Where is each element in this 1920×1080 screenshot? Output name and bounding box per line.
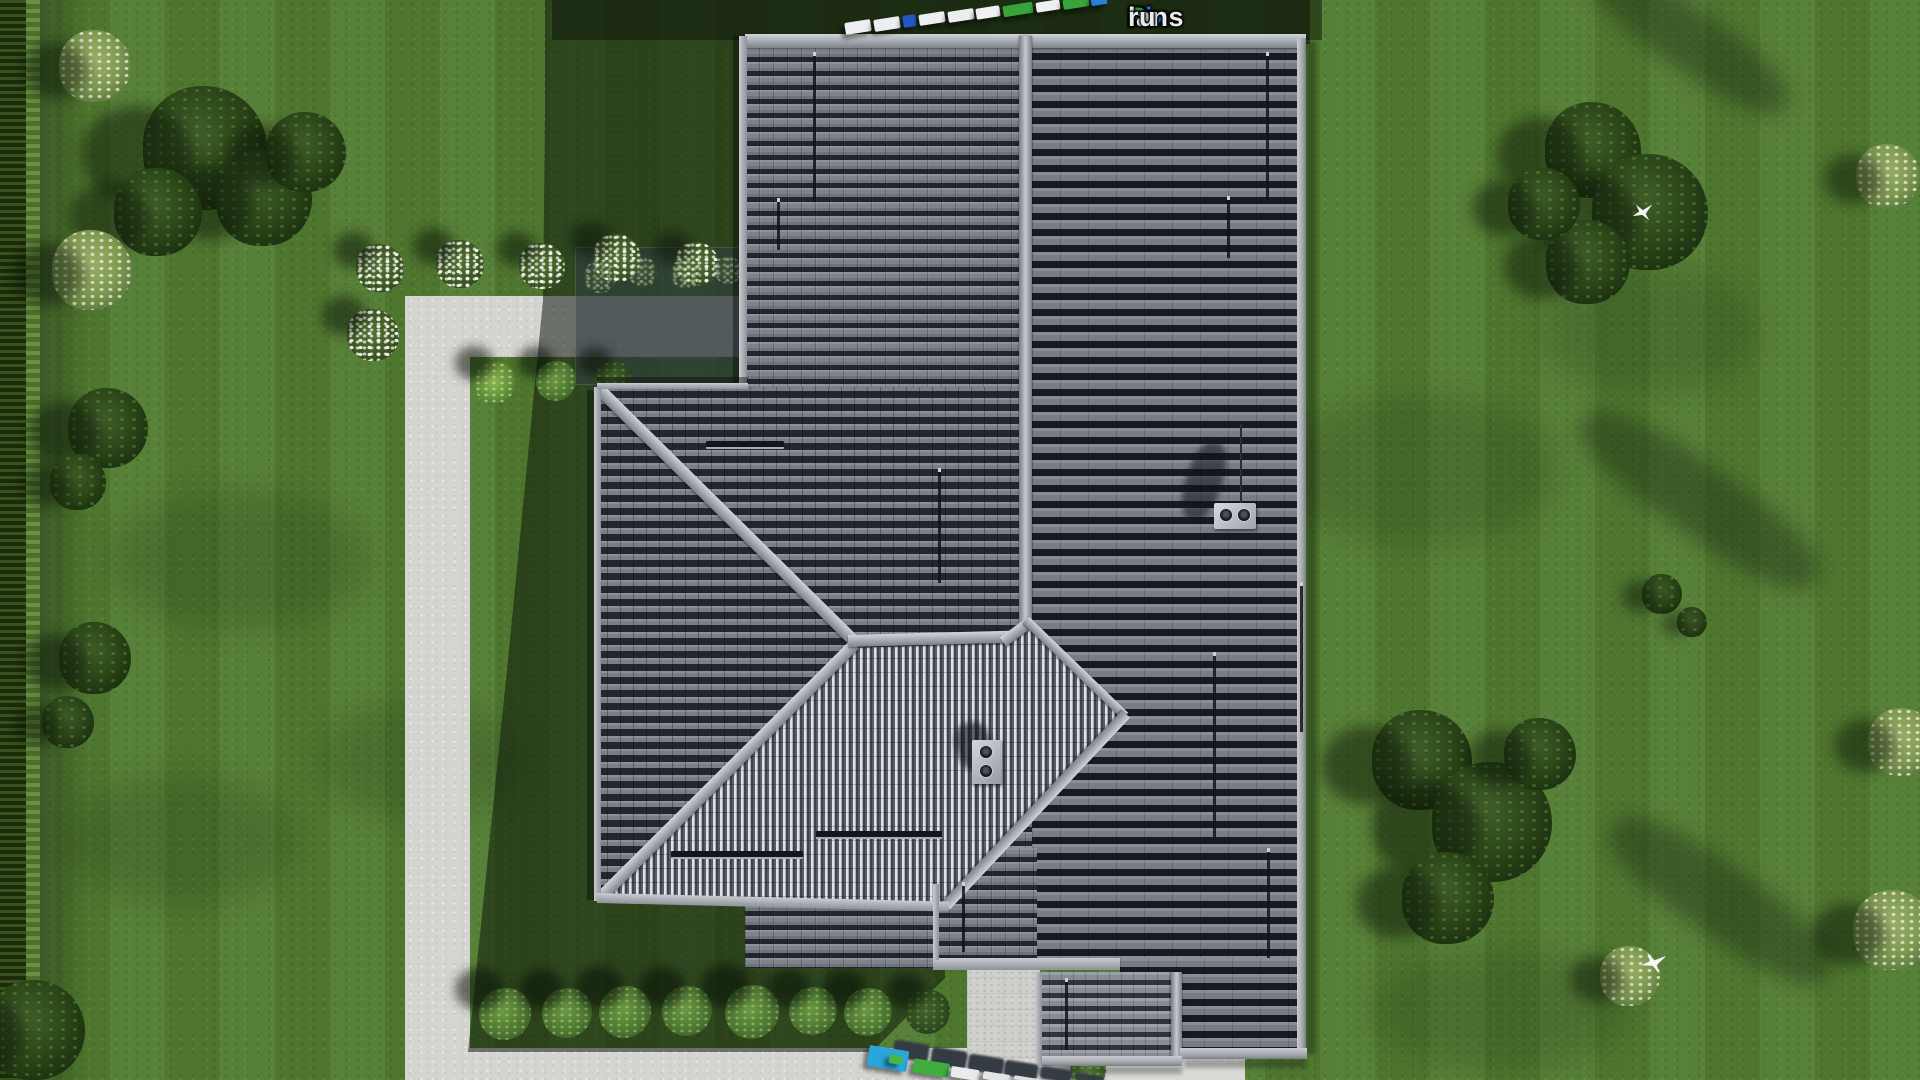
snow-guard: [813, 52, 816, 202]
roof-vent: [706, 441, 784, 449]
tree: [59, 30, 131, 102]
tree: [59, 622, 131, 694]
walkway-left-segment: [405, 296, 470, 1048]
roof-vent: [671, 851, 803, 859]
flower-bush: [584, 261, 616, 293]
flower-bush: [671, 259, 701, 289]
tree: [1853, 890, 1920, 970]
main-left-eave: [739, 36, 747, 387]
lawn-patch: [110, 490, 370, 630]
aerial-house-render: FixPlans.ru: [0, 0, 1920, 1080]
snow-guard: [1227, 196, 1230, 258]
tree: [1856, 144, 1920, 208]
snow-guard: [962, 882, 965, 952]
tree: [50, 454, 106, 510]
tree: [266, 112, 346, 192]
snow-guard: [938, 468, 941, 583]
step-left-eave: [933, 884, 939, 960]
tree: [42, 696, 94, 748]
tree: [1677, 607, 1707, 637]
wing-left-shadow-line: [587, 390, 594, 900]
flower-bush: [628, 257, 658, 287]
porch-roof: [1037, 972, 1182, 1063]
center-ridge-cap: [1019, 36, 1032, 624]
tree-shadow-streak: [1565, 391, 1835, 609]
step-bottom-eave: [933, 958, 1120, 970]
snow-guard: [1300, 582, 1303, 732]
green-bush: [474, 362, 516, 404]
snow-guard: [1065, 978, 1068, 1050]
tree: [1504, 718, 1576, 790]
wing-top-eave: [597, 383, 748, 389]
snow-guard: [777, 198, 780, 250]
green-bush: [906, 990, 950, 1034]
chimney-pipe: [1237, 508, 1251, 522]
main-right-eave: [1297, 38, 1306, 1058]
lawn-patch: [65, 775, 295, 905]
southeast-eave-shadow: [1184, 1059, 1306, 1068]
car: [902, 14, 917, 28]
wing-top-shadow-line: [597, 377, 748, 383]
right-eave-ground-shadow: [1306, 42, 1316, 1054]
tree: [114, 168, 202, 256]
flower-bush: [519, 243, 565, 289]
antenna-rod: [1240, 424, 1242, 506]
chimney: [1214, 503, 1256, 529]
main-roof-east-slope: [1032, 44, 1304, 968]
chimney: [972, 740, 1002, 784]
flower-bush: [436, 240, 484, 288]
chimney-pipe: [1219, 508, 1233, 522]
tree: [1402, 852, 1494, 944]
snow-guard: [1266, 52, 1269, 200]
roof-vent: [816, 831, 942, 839]
flower-bush: [356, 244, 404, 292]
porch-bottom-eave: [1035, 1056, 1182, 1066]
tree: [1868, 708, 1920, 776]
southeast-bottom-eave: [1180, 1048, 1307, 1059]
chimney-pipe: [979, 764, 993, 778]
main-left-shadow-line: [733, 36, 739, 387]
stone-patio: [967, 970, 1040, 1058]
lawn-patch: [1280, 395, 1560, 545]
logo-part: ru: [1128, 2, 1156, 33]
flower-bush: [347, 309, 399, 361]
snow-guard: [1267, 848, 1270, 958]
chimney-pipe: [979, 745, 993, 759]
tree: [1600, 946, 1660, 1006]
tree: [1642, 574, 1682, 614]
wing-left-eave: [594, 387, 601, 901]
tree: [52, 230, 132, 310]
porch-left-eave: [1035, 972, 1042, 1066]
tree: [1508, 168, 1580, 240]
hedge-highlight: [26, 0, 40, 1080]
car: [888, 1054, 902, 1065]
boundary-hedge: [0, 0, 26, 1080]
snow-guard: [1213, 652, 1216, 837]
